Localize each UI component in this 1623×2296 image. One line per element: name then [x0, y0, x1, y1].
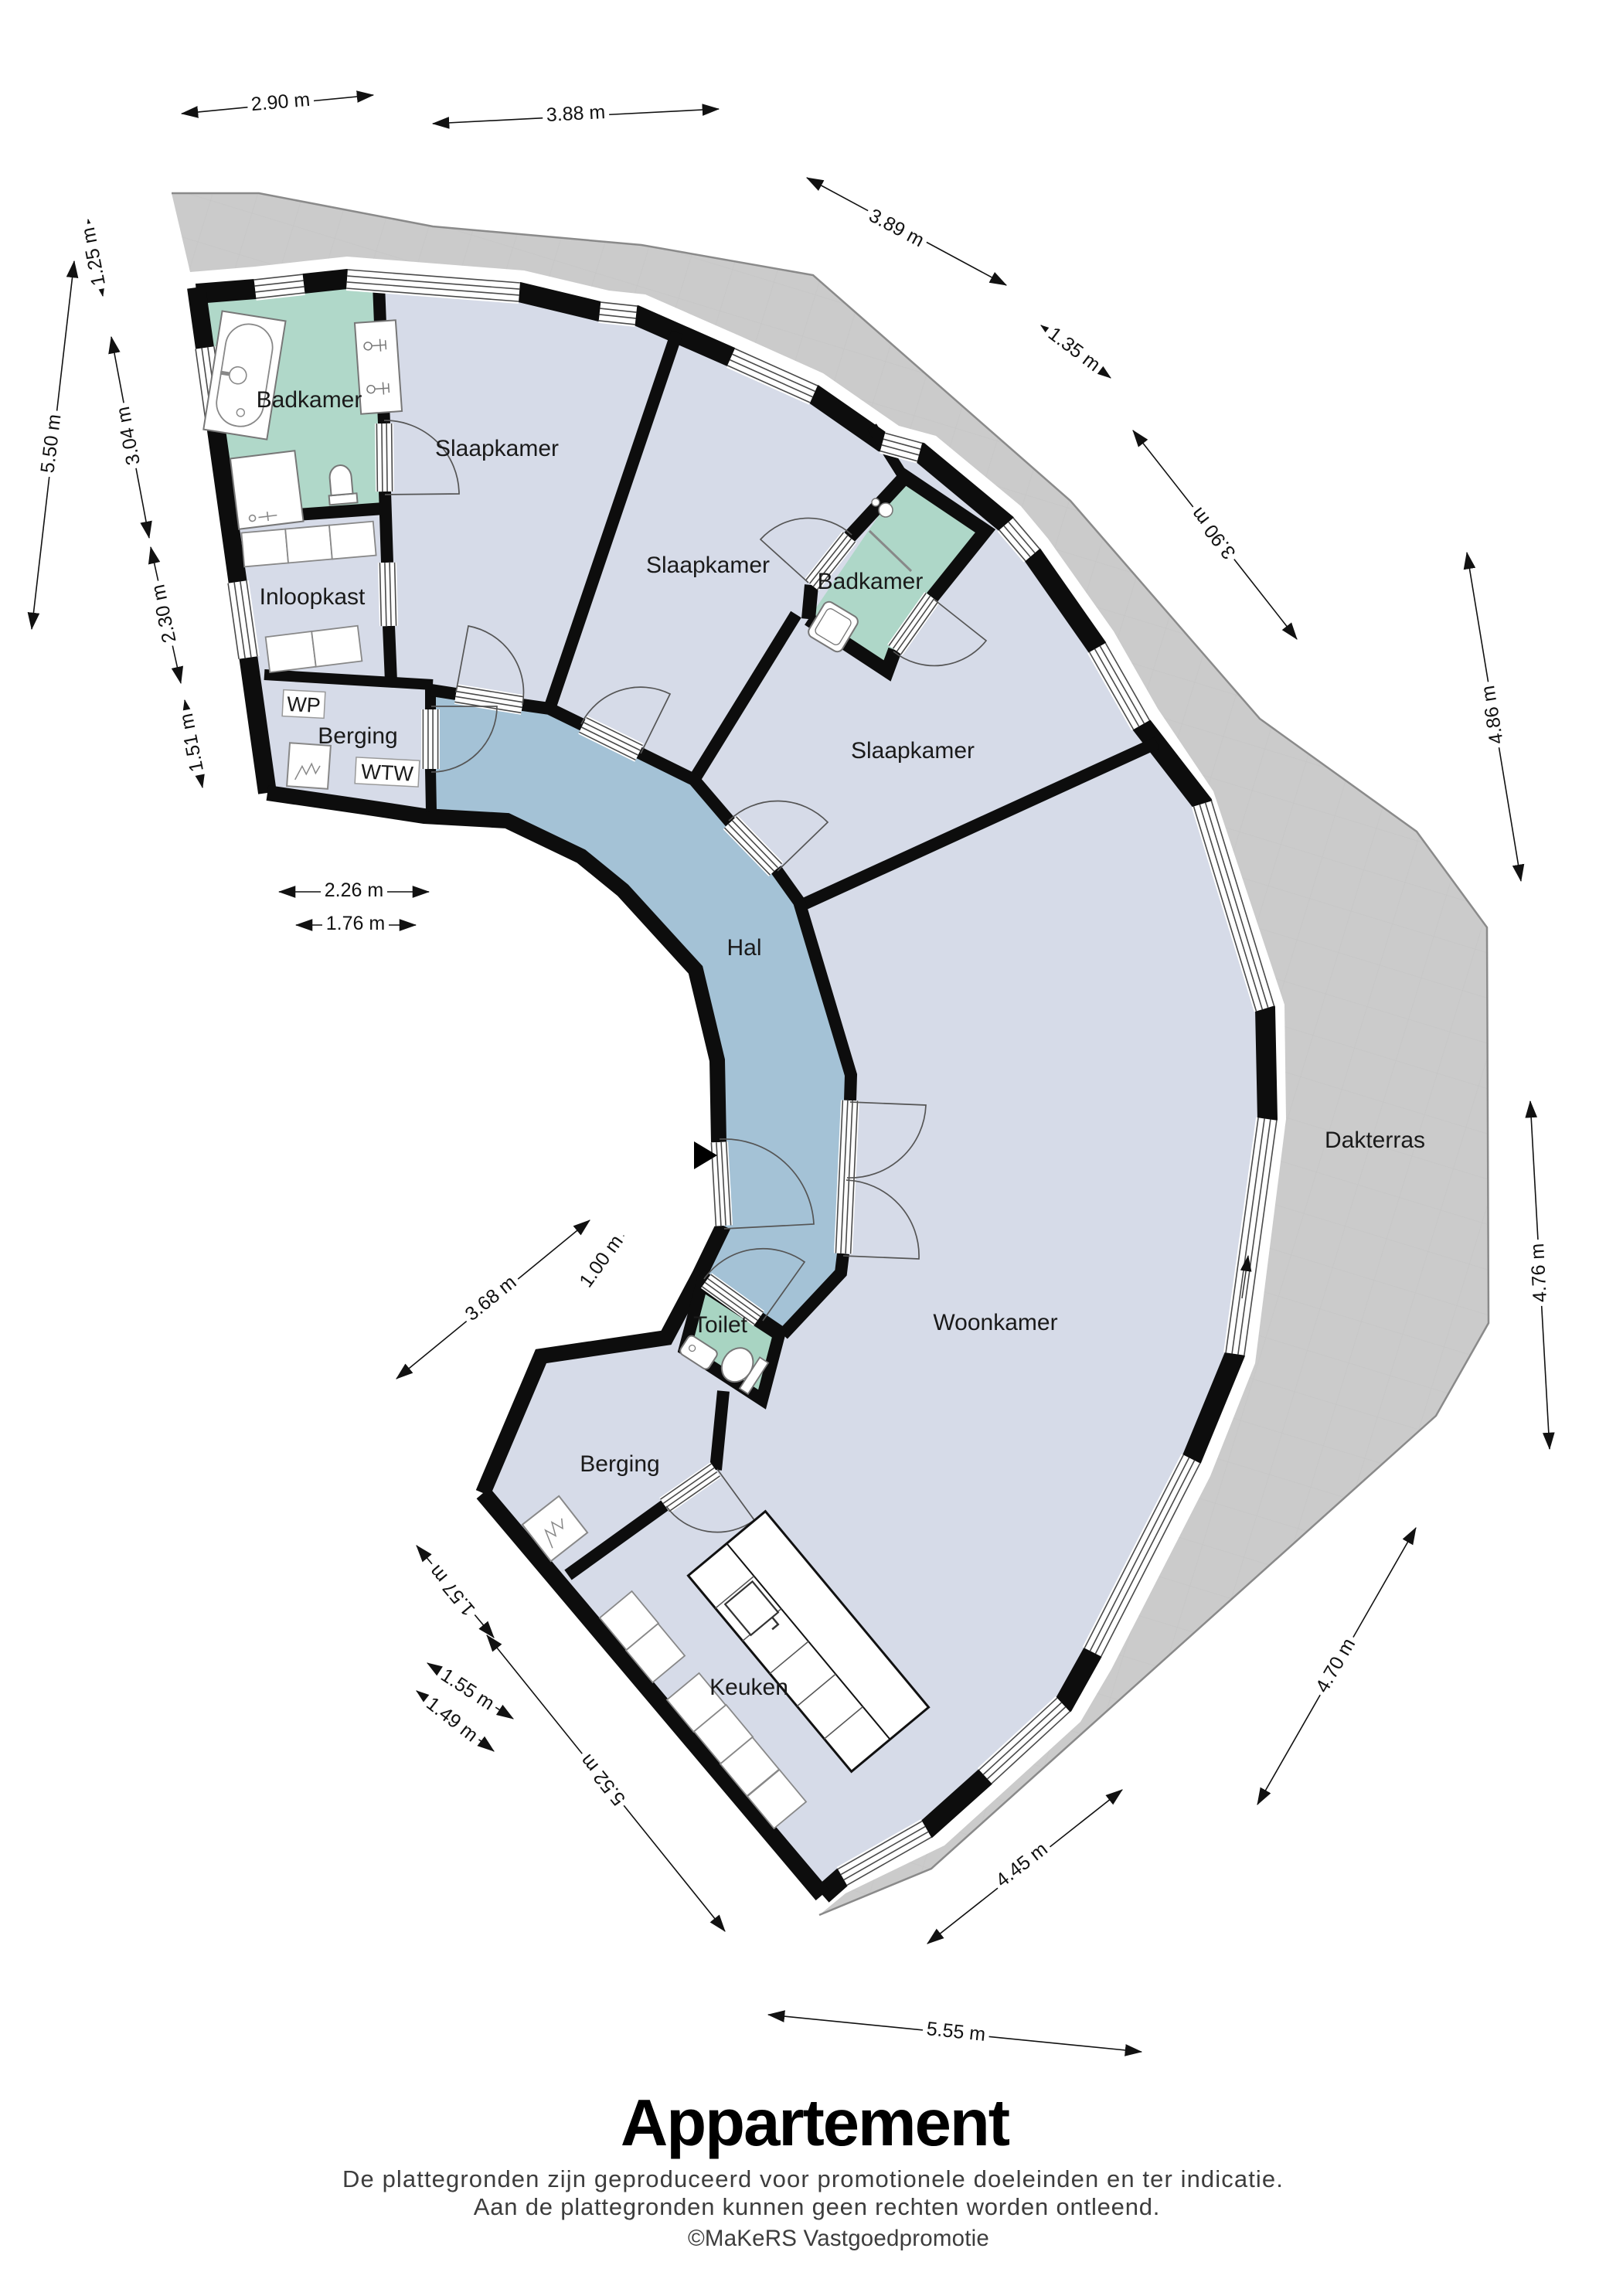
svg-text:©MaKeRS Vastgoedpromotie: ©MaKeRS Vastgoedpromotie — [688, 2226, 989, 2251]
svg-text:Slaapkamer: Slaapkamer — [435, 436, 559, 461]
svg-text:Toilet: Toilet — [693, 1312, 748, 1338]
svg-text:WTW: WTW — [360, 760, 413, 786]
svg-text:Slaapkamer: Slaapkamer — [851, 738, 975, 764]
svg-text:1.76 m: 1.76 m — [326, 913, 385, 934]
svg-text:Dakterras: Dakterras — [1325, 1128, 1425, 1153]
svg-text:De plattegronden zijn geproduc: De plattegronden zijn geproduceerd voor … — [342, 2165, 1284, 2192]
svg-text:Berging: Berging — [318, 723, 397, 749]
svg-text:Appartement: Appartement — [621, 2087, 1010, 2160]
svg-text:Hal: Hal — [726, 935, 761, 961]
svg-text:Slaapkamer: Slaapkamer — [646, 553, 770, 578]
svg-text:3.88 m: 3.88 m — [546, 101, 606, 126]
svg-text:2.26 m: 2.26 m — [325, 879, 383, 901]
svg-text:Berging: Berging — [580, 1451, 659, 1477]
svg-text:Keuken: Keuken — [709, 1675, 788, 1700]
svg-text:Inloopkast: Inloopkast — [260, 584, 366, 610]
svg-text:Woonkamer: Woonkamer — [933, 1310, 1057, 1335]
svg-text:Badkamer: Badkamer — [257, 387, 362, 413]
svg-text:4.76 m: 4.76 m — [1526, 1243, 1551, 1303]
svg-text:Badkamer: Badkamer — [818, 569, 924, 594]
svg-text:WP: WP — [286, 692, 321, 717]
svg-text:Aan de plattegronden kunnen ge: Aan de plattegronden kunnen geen rechten… — [474, 2193, 1160, 2220]
